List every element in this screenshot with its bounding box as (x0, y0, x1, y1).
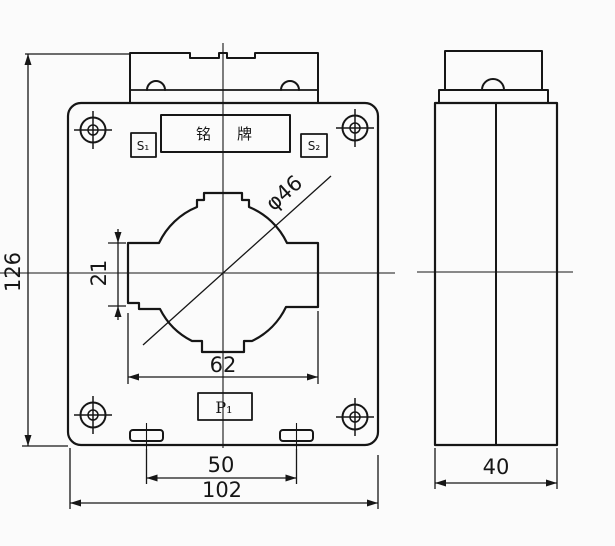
dim-label-102: 102 (202, 478, 242, 502)
side-terminal-cap (445, 51, 542, 90)
nameplate-label: 铭牌 (196, 125, 278, 143)
dim-label-126: 126 (1, 252, 25, 292)
dimension-aperture: φ46 (143, 171, 331, 345)
s2-label: S₂ (308, 139, 321, 153)
dim-label-21: 21 (87, 260, 111, 287)
mounting-hole-top-right (336, 109, 374, 147)
terminal-mark-s1: S₁ (131, 133, 156, 157)
dim-label-40: 40 (483, 455, 510, 479)
nameplate: 铭牌 (161, 115, 290, 152)
side-terminal-band (439, 90, 548, 103)
mounting-hole-bottom-left (74, 396, 112, 434)
mounting-hole-top-left (74, 111, 112, 149)
front-view: 铭牌 S₁ S₂ P₁ (0, 43, 395, 449)
s1-label: S₁ (137, 139, 150, 153)
dimension-depth: 40 (435, 448, 557, 489)
dimension-overall-height: 126 (1, 54, 130, 446)
terminal-mark-p1: P₁ (198, 393, 252, 420)
side-terminal-screw (482, 79, 504, 90)
dimension-window-side-height: 21 (87, 229, 126, 320)
dim-label-62: 62 (210, 353, 237, 377)
terminal-screw-right (281, 81, 299, 90)
p1-label: P₁ (215, 398, 232, 417)
dim-label-phi46: φ46 (261, 171, 307, 216)
terminal-block-outline (130, 53, 318, 103)
mounting-hole-bottom-right (336, 398, 374, 436)
side-view (417, 51, 573, 445)
dim-label-50: 50 (208, 453, 235, 477)
terminal-screw-left (147, 81, 165, 90)
front-terminal-block (130, 53, 318, 103)
technical-drawing: 铭牌 S₁ S₂ P₁ (0, 0, 615, 546)
terminal-mark-s2: S₂ (301, 134, 327, 157)
